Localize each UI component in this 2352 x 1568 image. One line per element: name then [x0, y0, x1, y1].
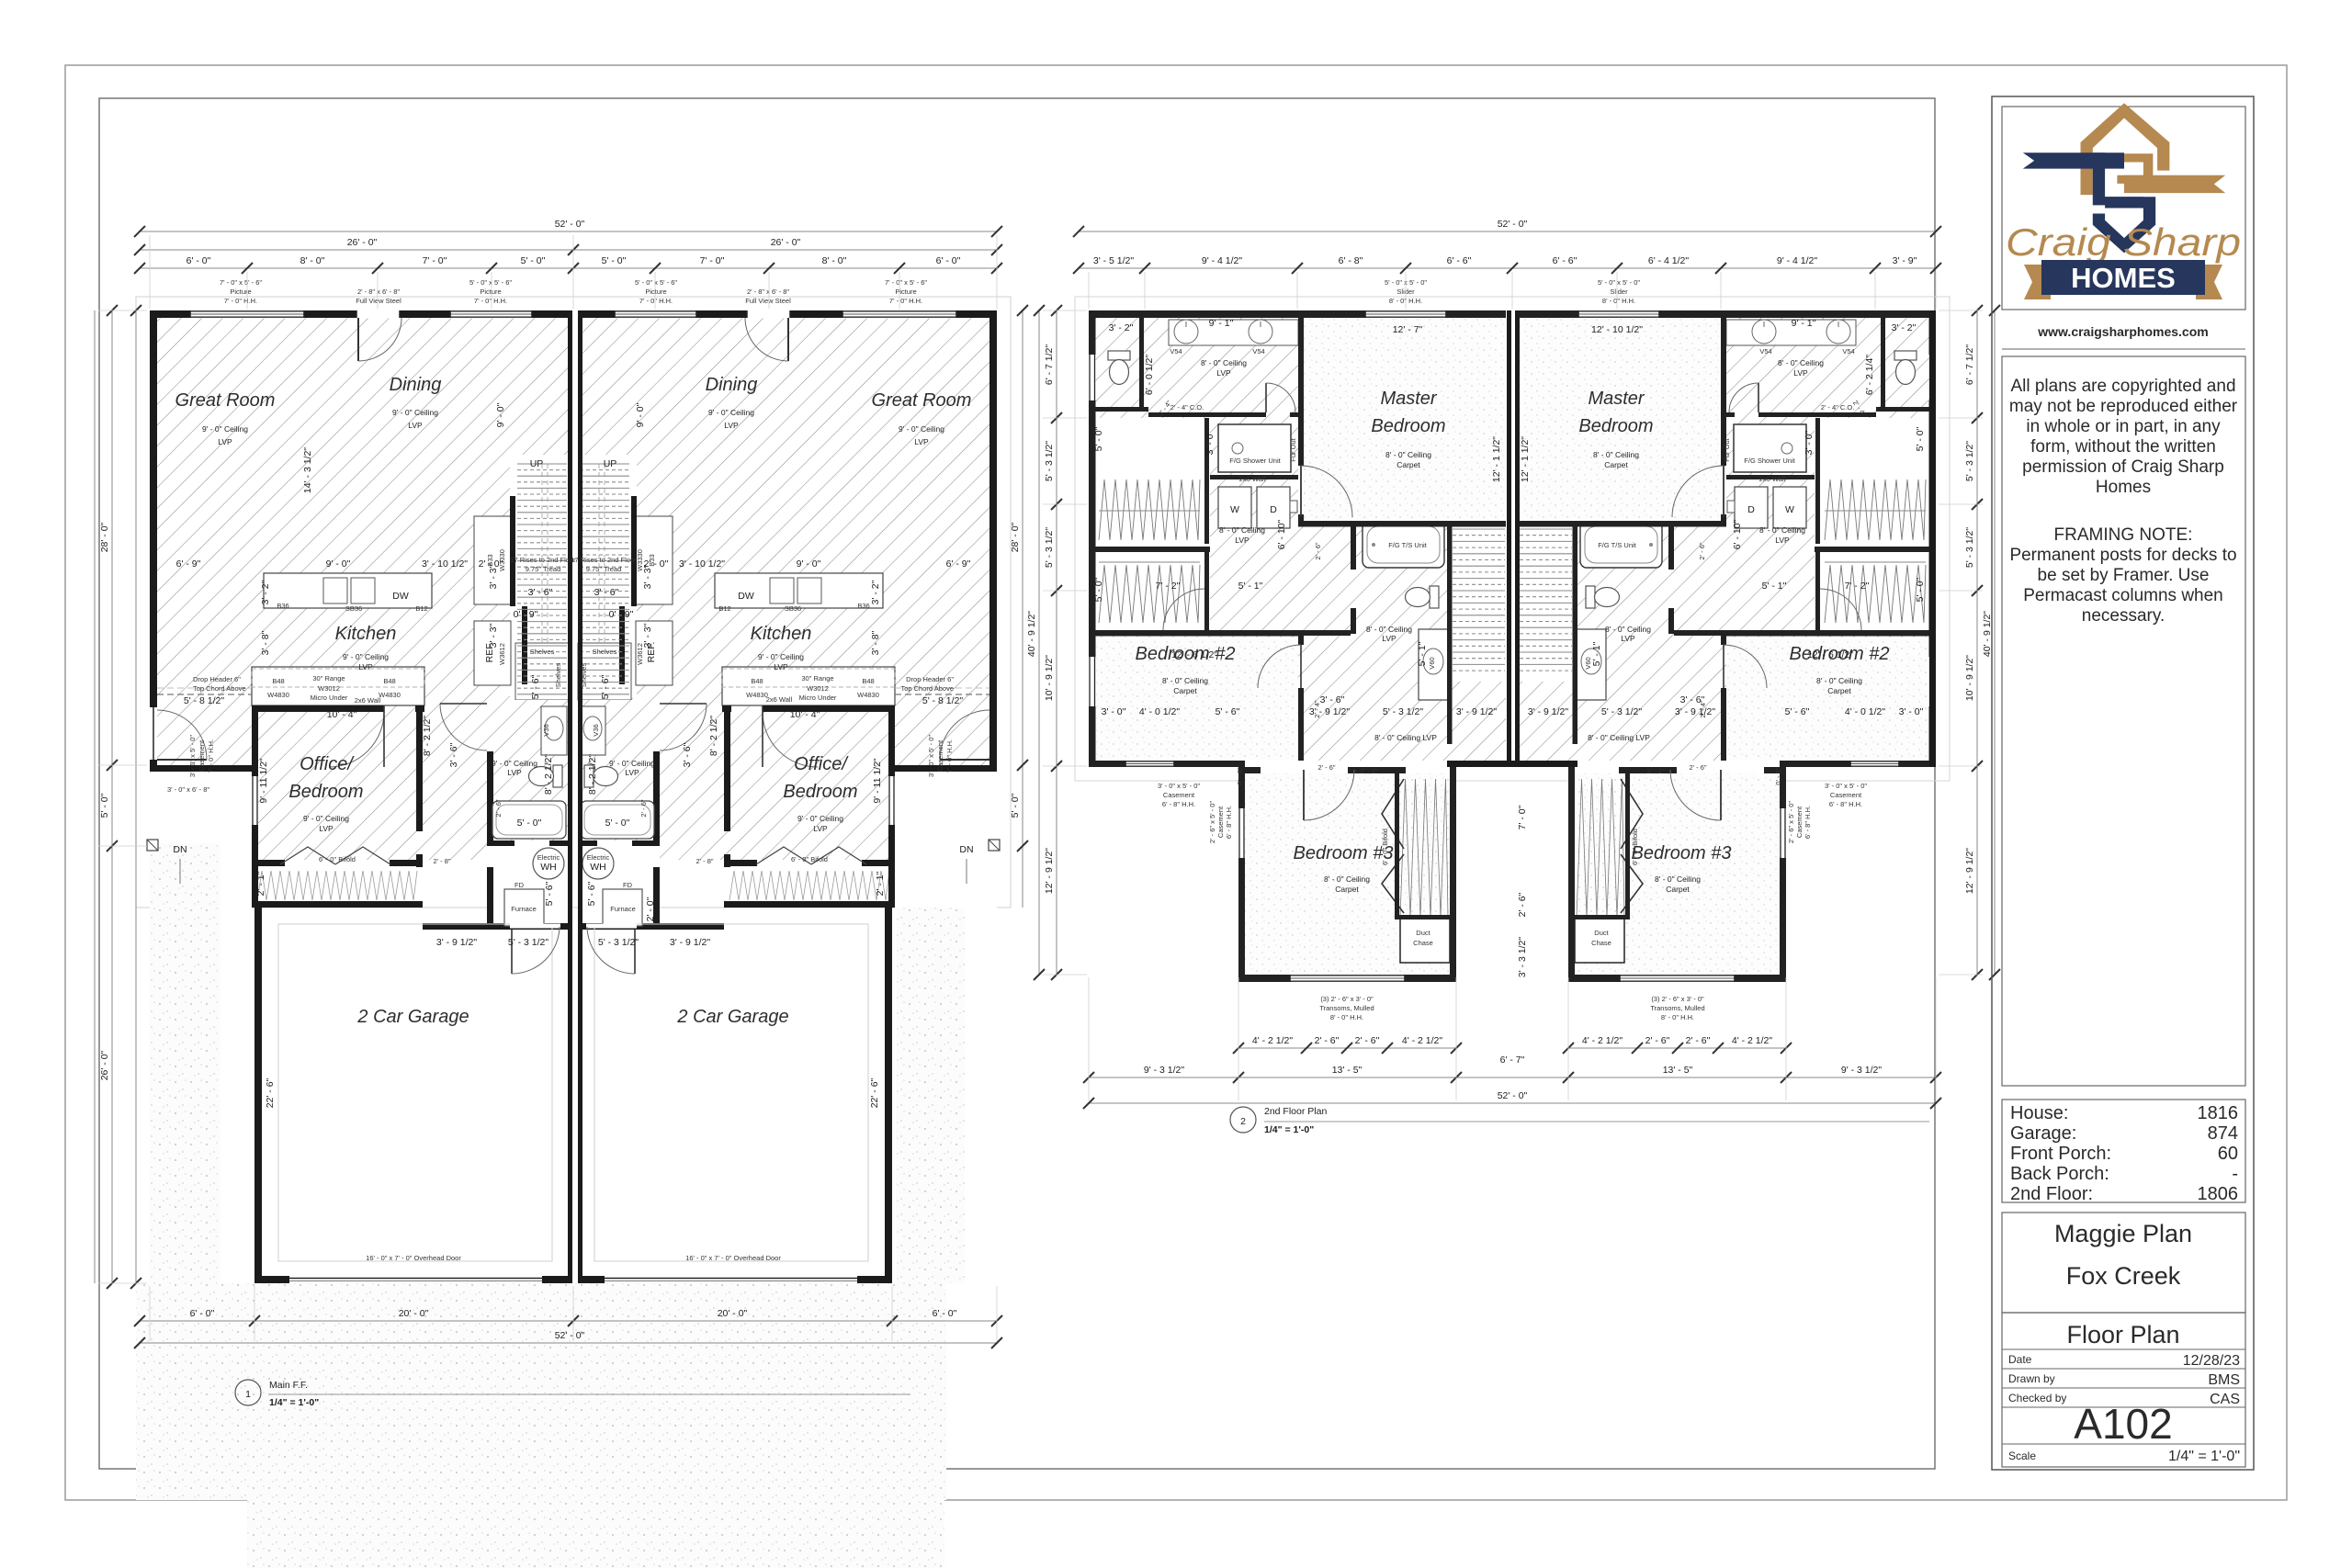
svg-text:8' - 0" Ceiling LVP: 8' - 0" Ceiling LVP: [1588, 733, 1650, 742]
svg-text:2' - 6": 2' - 6": [1517, 892, 1528, 917]
svg-text:13' - 5": 13' - 5": [1663, 1065, 1693, 1076]
svg-text:SB36: SB36: [785, 604, 801, 613]
svg-text:9' - 0" Ceiling: 9' - 0" Ceiling: [303, 814, 349, 823]
svg-text:Homes: Homes: [2096, 478, 2151, 497]
svg-text:6' - 0" Bifold: 6' - 0" Bifold: [319, 855, 356, 863]
svg-text:9' - 3 1/2": 9' - 3 1/2": [1841, 1065, 1883, 1076]
svg-text:DW: DW: [738, 591, 754, 602]
svg-text:12' - 10 1/2": 12' - 10 1/2": [1591, 324, 1643, 335]
svg-text:9' - 0" Ceiling: 9' - 0" Ceiling: [609, 759, 655, 768]
svg-text:LVP: LVP: [1235, 536, 1249, 545]
svg-text:A102: A102: [2074, 1400, 2172, 1448]
svg-text:6' - 0" Bifold: 6' - 0" Bifold: [1381, 829, 1389, 865]
svg-text:12' - 7": 12' - 7": [1393, 324, 1423, 335]
svg-text:5' - 0": 5' - 0": [1010, 793, 1021, 818]
svg-text:B36: B36: [857, 602, 869, 610]
svg-text:10' - 9 1/2": 10' - 9 1/2": [1044, 655, 1055, 701]
svg-text:2nd Floor:: 2nd Floor:: [2010, 1184, 2093, 1204]
svg-text:12' - 1 1/2": 12' - 1 1/2": [1491, 436, 1502, 482]
svg-text:5' - 0": 5' - 0": [602, 255, 627, 266]
svg-text:28' - 0": 28' - 0": [99, 522, 110, 552]
svg-text:3' - 9 1/2": 3' - 9 1/2": [1456, 706, 1498, 717]
svg-text:House:: House:: [2010, 1103, 2068, 1123]
svg-text:Carpet: Carpet: [1173, 686, 1197, 695]
svg-text:Full View Steel: Full View Steel: [745, 297, 791, 305]
svg-text:12' - 9 1/2": 12' - 9 1/2": [1964, 848, 1975, 894]
svg-text:5' - 0": 5' - 0": [517, 818, 542, 829]
svg-text:13' - 5": 13' - 5": [1332, 1065, 1363, 1076]
svg-text:SB36: SB36: [345, 604, 362, 613]
svg-text:5' - 1": 5' - 1": [1762, 581, 1787, 592]
svg-text:28' - 0": 28' - 0": [1010, 522, 1021, 552]
svg-text:8' - 0": 8' - 0": [300, 255, 325, 266]
svg-text:LVP: LVP: [1382, 634, 1396, 643]
svg-text:3' - 9 1/2": 3' - 9 1/2": [1528, 706, 1569, 717]
svg-text:be set by Framer. Use: be set by Framer. Use: [2038, 566, 2210, 585]
svg-text:26' - 0": 26' - 0": [99, 1050, 110, 1080]
svg-text:1816: 1816: [2198, 1103, 2239, 1123]
svg-text:Picture: Picture: [645, 288, 666, 296]
svg-text:permission of Craig Sharp: permission of Craig Sharp: [2022, 457, 2224, 477]
svg-text:5' - 3 1/2": 5' - 3 1/2": [1601, 706, 1643, 717]
svg-text:52' - 0": 52' - 0": [1498, 1090, 1528, 1101]
svg-text:Chase: Chase: [1413, 939, 1433, 947]
svg-text:W4830: W4830: [857, 691, 879, 699]
svg-text:3' - 9 1/2": 3' - 9 1/2": [670, 937, 711, 948]
svg-text:necessary.: necessary.: [2082, 606, 2165, 626]
svg-text:5' - 0" x 5' - 0": 5' - 0" x 5' - 0": [1598, 278, 1640, 287]
svg-text:6' - 2 1/4": 6' - 2 1/4": [1864, 355, 1875, 396]
svg-text:7' - 0" H.H.: 7' - 0" H.H.: [207, 739, 215, 773]
svg-text:2' - 8": 2' - 8": [695, 857, 713, 865]
svg-text:7' - 0" H.H.: 7' - 0" H.H.: [474, 297, 507, 305]
svg-text:7' - 2": 7' - 2": [1156, 581, 1181, 592]
svg-text:30" Range: 30" Range: [312, 674, 345, 682]
svg-text:5' - 3 1/2": 5' - 3 1/2": [1044, 527, 1055, 569]
svg-text:8' - 0" H.H.: 8' - 0" H.H.: [1602, 297, 1635, 305]
svg-text:3' - 5 1/2": 3' - 5 1/2": [1093, 255, 1135, 266]
svg-text:14' - 3 1/2": 14' - 3 1/2": [302, 447, 313, 493]
svg-text:V54: V54: [1170, 347, 1182, 355]
svg-text:22' - 6": 22' - 6": [265, 1077, 276, 1108]
svg-text:3' - 0": 3' - 0": [1899, 706, 1924, 717]
svg-text:8' - 2 1/2": 8' - 2 1/2": [543, 754, 554, 795]
svg-text:WH: WH: [590, 862, 606, 873]
svg-text:3' - 0" x 5' - 0": 3' - 0" x 5' - 0": [1825, 782, 1867, 790]
svg-text:B12: B12: [718, 604, 730, 613]
svg-text:Duct: Duct: [1416, 929, 1430, 937]
svg-text:Date: Date: [2008, 1353, 2032, 1366]
svg-text:12' - 6 1/2": 12' - 6 1/2": [1807, 649, 1853, 660]
svg-text:6' - 8" H.H.: 6' - 8" H.H.: [1225, 806, 1233, 839]
svg-text:Garage:: Garage:: [2010, 1123, 2076, 1144]
svg-text:6' - 4 1/2": 6' - 4 1/2": [1648, 255, 1690, 266]
svg-text:Electric: Electric: [537, 853, 560, 862]
svg-text:8' - 0" Ceiling: 8' - 0" Ceiling: [1778, 358, 1824, 367]
svg-text:5' - 0": 5' - 0": [1915, 577, 1926, 602]
svg-text:8' - 0" Ceiling: 8' - 0" Ceiling: [1593, 450, 1639, 459]
svg-text:Duct: Duct: [1594, 929, 1609, 937]
svg-text:4' - 2 1/2": 4' - 2 1/2": [1582, 1035, 1623, 1046]
svg-text:6' - 7 1/2": 6' - 7 1/2": [1964, 344, 1975, 386]
svg-text:Carpet: Carpet: [1335, 885, 1359, 894]
svg-text:1/4" = 1'-0": 1/4" = 1'-0": [1264, 1124, 1314, 1135]
svg-text:2: 2: [1240, 1116, 1246, 1127]
svg-text:5' - 6": 5' - 6": [600, 674, 611, 699]
svg-text:D: D: [1747, 504, 1755, 515]
svg-text:5' - 6": 5' - 6": [1785, 706, 1810, 717]
svg-text:5' - 0" x 5' - 6": 5' - 0" x 5' - 6": [635, 278, 677, 287]
svg-text:3' - 0": 3' - 0": [1102, 706, 1126, 717]
svg-text:Casement: Casement: [1163, 791, 1195, 799]
svg-text:2' - 6": 2' - 6": [639, 799, 648, 817]
svg-text:6' - 8" H.H.: 6' - 8" H.H.: [1804, 806, 1812, 839]
svg-text:2' - 6": 2' - 6": [1686, 1035, 1711, 1046]
svg-text:9' - 1": 9' - 1": [1209, 318, 1234, 329]
svg-text:Top Chord Above: Top Chord Above: [900, 684, 954, 693]
svg-text:Checked by: Checked by: [2008, 1392, 2066, 1404]
svg-text:FRAMING NOTE:: FRAMING NOTE:: [2054, 525, 2193, 545]
svg-text:0' - 8": 0' - 8": [1774, 767, 1782, 784]
svg-text:LVP: LVP: [1775, 536, 1790, 545]
svg-text:W3612: W3612: [498, 643, 506, 665]
svg-text:Bedroom #3: Bedroom #3: [1294, 843, 1394, 863]
svg-text:B36: B36: [277, 602, 288, 610]
svg-text:7' - 0" H.H.: 7' - 0" H.H.: [639, 297, 673, 305]
svg-text:LVP: LVP: [914, 437, 929, 446]
svg-text:Picture: Picture: [230, 288, 251, 296]
svg-text:(3) 2' - 6" x 3' - 0": (3) 2' - 6" x 3' - 0": [1320, 995, 1374, 1003]
svg-text:7' - 0" H.H.: 7' - 0" H.H.: [945, 739, 954, 773]
svg-text:B48: B48: [272, 677, 284, 685]
svg-text:Top Chord Above: Top Chord Above: [193, 684, 246, 693]
svg-text:Dining: Dining: [390, 375, 442, 395]
svg-text:12/28/23: 12/28/23: [2183, 1353, 2240, 1369]
svg-text:Carpet: Carpet: [1666, 885, 1690, 894]
svg-text:1/4" = 1'-0": 1/4" = 1'-0": [269, 1397, 319, 1408]
svg-text:8' - 0": 8' - 0": [822, 255, 847, 266]
svg-text:6' - 6": 6' - 6": [1447, 255, 1472, 266]
svg-text:2' - 8" x 6' - 8": 2' - 8" x 6' - 8": [747, 288, 789, 296]
svg-text:8' - 0" Ceiling LVP: 8' - 0" Ceiling LVP: [1374, 733, 1437, 742]
svg-text:DN: DN: [959, 844, 973, 855]
svg-text:6' - 8": 6' - 8": [1339, 255, 1363, 266]
svg-text:9' - 0" Ceiling: 9' - 0" Ceiling: [392, 408, 438, 417]
svg-text:www.craigsharphomes.com: www.craigsharphomes.com: [2037, 324, 2208, 339]
svg-text:7' - 2": 7' - 2": [1845, 581, 1870, 592]
svg-text:2x6 Wall: 2x6 Wall: [1759, 475, 1786, 483]
svg-text:3' - 6": 3' - 6": [594, 587, 619, 598]
svg-text:7' - 0": 7' - 0": [700, 255, 725, 266]
svg-text:Bedroom #3: Bedroom #3: [1632, 843, 1732, 863]
svg-text:3' - 9 1/2": 3' - 9 1/2": [1675, 706, 1716, 717]
svg-text:6' - 0": 6' - 0": [187, 255, 211, 266]
svg-text:2' - 0": 2' - 0": [645, 897, 656, 921]
svg-text:D: D: [1270, 504, 1277, 515]
svg-text:Micro Under: Micro Under: [799, 694, 837, 702]
svg-text:2' - 6": 2' - 6": [1315, 1035, 1340, 1046]
svg-text:3' - 3": 3' - 3": [642, 564, 653, 589]
svg-text:9.75" Tread: 9.75" Tread: [526, 565, 561, 573]
svg-text:1806: 1806: [2198, 1184, 2239, 1204]
svg-text:B48: B48: [751, 677, 763, 685]
svg-text:9' - 0" Ceiling: 9' - 0" Ceiling: [797, 814, 843, 823]
svg-text:Fox Creek: Fox Creek: [2066, 1262, 2181, 1290]
svg-text:3' - 9": 3' - 9": [1893, 255, 1917, 266]
svg-text:LVP: LVP: [774, 662, 788, 671]
svg-text:W4830: W4830: [746, 691, 768, 699]
svg-text:9' - 0": 9' - 0": [495, 402, 506, 427]
svg-text:2' - 6": 2' - 6": [494, 799, 503, 817]
svg-text:10' - 9 1/2": 10' - 9 1/2": [1964, 655, 1975, 701]
svg-text:12' - 9 1/2": 12' - 9 1/2": [1044, 848, 1055, 894]
svg-text:3' - 6": 3' - 6": [682, 742, 693, 767]
svg-text:Scale: Scale: [2008, 1450, 2036, 1462]
svg-text:2 Car Garage: 2 Car Garage: [676, 1007, 788, 1027]
svg-text:(3) 2' - 6" x 3' - 0": (3) 2' - 6" x 3' - 0": [1651, 995, 1704, 1003]
svg-text:5' - 1": 5' - 1": [1417, 641, 1428, 666]
svg-text:LVP: LVP: [1793, 368, 1808, 378]
svg-text:4' - 0 1/2": 4' - 0 1/2": [1139, 706, 1181, 717]
svg-text:LVP: LVP: [1621, 634, 1635, 643]
svg-text:9' - 0" Ceiling: 9' - 0" Ceiling: [202, 424, 248, 434]
svg-text:3' - 8": 3' - 8": [870, 630, 881, 655]
svg-text:3' - 0" x 6' - 8": 3' - 0" x 6' - 8": [167, 785, 209, 794]
svg-text:V54: V54: [1759, 347, 1771, 355]
svg-text:7' - 0" x 5' - 6": 7' - 0" x 5' - 6": [885, 278, 927, 287]
svg-text:Kitchen: Kitchen: [751, 624, 812, 644]
svg-text:Dining: Dining: [706, 375, 758, 395]
svg-text:Casement: Casement: [1216, 806, 1225, 838]
svg-text:2' - 8": 2' - 8": [433, 857, 450, 865]
svg-text:2x6 Wall: 2x6 Wall: [355, 696, 381, 705]
svg-text:Drop Header 6": Drop Header 6": [193, 675, 241, 683]
svg-text:52' - 0": 52' - 0": [555, 1330, 585, 1341]
svg-text:2' - 1": 2' - 1": [1360, 767, 1377, 775]
svg-text:8' - 2 1/2": 8' - 2 1/2": [422, 716, 433, 757]
svg-text:F/G T/S Unit: F/G T/S Unit: [1598, 541, 1636, 549]
svg-text:Great Room: Great Room: [872, 390, 972, 411]
svg-text:6' - 0": 6' - 0": [190, 1308, 215, 1319]
svg-text:3' - 3": 3' - 3": [642, 623, 653, 648]
svg-text:40' - 9 1/2": 40' - 9 1/2": [1026, 611, 1037, 657]
svg-text:LVP: LVP: [319, 824, 334, 833]
svg-text:2 Car Garage: 2 Car Garage: [356, 1007, 469, 1027]
svg-text:Bedroom: Bedroom: [1371, 416, 1445, 436]
svg-text:Master: Master: [1380, 389, 1437, 409]
svg-text:W: W: [1230, 504, 1239, 515]
svg-text:Shelves: Shelves: [580, 662, 588, 687]
svg-text:0' - 8": 0' - 8": [1236, 767, 1244, 784]
svg-text:10' - 4": 10' - 4": [790, 709, 820, 720]
svg-text:Floor Plan: Floor Plan: [2066, 1321, 2179, 1348]
svg-text:2' - 1": 2' - 1": [875, 871, 886, 896]
svg-text:5' - 0": 5' - 0": [521, 255, 546, 266]
svg-text:Casement: Casement: [1830, 791, 1862, 799]
svg-text:Electric: Electric: [587, 853, 610, 862]
svg-text:6' - 9": 6' - 9": [176, 558, 201, 570]
svg-text:5' - 6": 5' - 6": [544, 881, 555, 906]
svg-text:Micro Under: Micro Under: [311, 694, 348, 702]
svg-text:2x6 Wall: 2x6 Wall: [766, 695, 793, 704]
svg-text:2' - 8" x 6' - 8": 2' - 8" x 6' - 8": [357, 288, 400, 296]
svg-text:V54: V54: [1842, 347, 1854, 355]
svg-text:5' - 0": 5' - 0": [99, 793, 110, 818]
svg-text:26' - 0": 26' - 0": [347, 237, 378, 248]
svg-text:9' - 0": 9' - 0": [326, 558, 351, 570]
svg-text:Bedroom: Bedroom: [1578, 416, 1653, 436]
svg-text:52' - 0": 52' - 0": [1498, 219, 1528, 230]
svg-text:8' - 0" Ceiling: 8' - 0" Ceiling: [1324, 874, 1370, 884]
svg-text:8' - 2 1/2": 8' - 2 1/2": [587, 754, 598, 795]
svg-text:17 Rises to 2nd Floor: 17 Rises to 2nd Floor: [571, 556, 637, 564]
svg-text:Front Porch:: Front Porch:: [2010, 1144, 2111, 1164]
svg-text:3' - 0": 3' - 0": [1804, 430, 1815, 455]
svg-text:4' - 0 1/2": 4' - 0 1/2": [1845, 706, 1886, 717]
svg-text:Back Porch:: Back Porch:: [2010, 1164, 2109, 1184]
svg-text:LVP: LVP: [1216, 368, 1231, 378]
svg-text:Furnace: Furnace: [511, 905, 537, 913]
svg-text:6' - 0 1/2": 6' - 0 1/2": [1144, 355, 1155, 396]
svg-text:LVP: LVP: [625, 768, 639, 777]
svg-text:FD: FD: [514, 881, 525, 889]
svg-text:3' - 0": 3' - 0": [1204, 430, 1216, 455]
svg-text:9' - 1": 9' - 1": [1792, 318, 1816, 329]
svg-text:8' - 0" H.H.: 8' - 0" H.H.: [1661, 1013, 1694, 1021]
svg-text:9' - 0" Ceiling: 9' - 0" Ceiling: [343, 652, 389, 661]
svg-text:3' - 10 1/2": 3' - 10 1/2": [422, 558, 468, 570]
svg-text:7' - 0" H.H.: 7' - 0" H.H.: [224, 297, 257, 305]
svg-text:8' - 0" H.H.: 8' - 0" H.H.: [1330, 1013, 1363, 1021]
svg-text:5' - 3 1/2": 5' - 3 1/2": [1964, 441, 1975, 482]
svg-text:Shelves: Shelves: [554, 662, 562, 687]
svg-text:5' - 1": 5' - 1": [1591, 641, 1602, 666]
svg-text:LVP: LVP: [507, 768, 522, 777]
svg-text:9' - 4 1/2": 9' - 4 1/2": [1777, 255, 1818, 266]
svg-text:Bedroom: Bedroom: [783, 782, 857, 802]
svg-text:2' - 6": 2' - 6": [1317, 763, 1335, 772]
svg-text:2' - 0": 2' - 0": [485, 897, 496, 921]
svg-text:3' - 10 1/2": 3' - 10 1/2": [679, 558, 725, 570]
svg-text:9' - 11 1/2": 9' - 11 1/2": [872, 758, 883, 804]
svg-text:FD: FD: [623, 881, 633, 889]
svg-text:8' - 0" Ceiling: 8' - 0" Ceiling: [1816, 676, 1862, 685]
svg-text:CAS: CAS: [2210, 1392, 2240, 1407]
svg-text:Carpet: Carpet: [1604, 460, 1628, 469]
svg-text:6' - 0": 6' - 0": [936, 255, 961, 266]
svg-text:Drop Header 6": Drop Header 6": [906, 675, 954, 683]
svg-text:4' - 2 1/2": 4' - 2 1/2": [1732, 1035, 1773, 1046]
svg-text:Master: Master: [1588, 389, 1645, 409]
svg-text:2' - 4" C.O.: 2' - 4" C.O.: [1170, 403, 1204, 412]
svg-text:16' - 0" x 7' - 0" Overhead Do: 16' - 0" x 7' - 0" Overhead Door: [366, 1254, 461, 1262]
svg-text:10' - 4": 10' - 4": [327, 709, 357, 720]
svg-text:5' - 8 1/2": 5' - 8 1/2": [184, 695, 225, 706]
svg-text:Transoms, Mulled: Transoms, Mulled: [1319, 1004, 1374, 1012]
svg-text:5' - 6": 5' - 6": [530, 674, 541, 699]
svg-text:3' - 9 1/2": 3' - 9 1/2": [436, 937, 478, 948]
svg-text:Main F.F.: Main F.F.: [269, 1380, 308, 1391]
svg-text:Great Room: Great Room: [175, 390, 276, 411]
svg-text:2' - 6": 2' - 6": [1314, 542, 1322, 559]
svg-text:8' - 0" Ceiling: 8' - 0" Ceiling: [1201, 358, 1247, 367]
svg-text:0' - 9": 0' - 9": [514, 609, 538, 620]
svg-text:6' - 0" Bifold: 6' - 0" Bifold: [1631, 829, 1639, 865]
svg-text:Shelves: Shelves: [593, 648, 617, 656]
svg-text:Permacast columns when: Permacast columns when: [2023, 586, 2223, 605]
svg-text:5' - 8 1/2": 5' - 8 1/2": [922, 695, 964, 706]
svg-text:5' - 6": 5' - 6": [1216, 706, 1240, 717]
svg-text:F/G Shower Unit: F/G Shower Unit: [1229, 457, 1281, 465]
svg-text:DW: DW: [392, 591, 409, 602]
svg-text:5' - 0": 5' - 0": [1093, 577, 1104, 602]
svg-text:3' - 0" x 5' - 0": 3' - 0" x 5' - 0": [188, 735, 197, 777]
svg-text:Slider: Slider: [1610, 288, 1628, 296]
svg-text:2' - 1": 2' - 1": [1646, 767, 1664, 775]
svg-text:WH: WH: [540, 862, 557, 873]
svg-text:Bedroom: Bedroom: [288, 782, 363, 802]
svg-text:6' - 10": 6' - 10": [1732, 519, 1743, 549]
svg-text:3' - 3 1/2": 3' - 3 1/2": [1517, 937, 1528, 978]
svg-text:52' - 0": 52' - 0": [555, 219, 585, 230]
svg-text:9.75" Tread: 9.75" Tread: [586, 565, 622, 573]
svg-text:W3012: W3012: [318, 684, 340, 693]
svg-text:7' - 0": 7' - 0": [1517, 805, 1528, 829]
svg-text:V60: V60: [1428, 657, 1436, 669]
svg-text:6' - 0": 6' - 0": [933, 1308, 957, 1319]
svg-text:Picture: Picture: [480, 288, 501, 296]
svg-text:0' - 9": 0' - 9": [609, 609, 634, 620]
svg-text:5' - 3 1/2": 5' - 3 1/2": [508, 937, 549, 948]
svg-text:1/4" = 1'-0": 1/4" = 1'-0": [2168, 1449, 2240, 1464]
svg-text:9' - 0": 9' - 0": [635, 402, 646, 427]
svg-text:7' - 0" H.H.: 7' - 0" H.H.: [889, 297, 922, 305]
svg-text:V54: V54: [1252, 347, 1264, 355]
svg-text:5' - 1": 5' - 1": [1238, 581, 1263, 592]
svg-text:3' - 6": 3' - 6": [528, 587, 553, 598]
svg-text:W: W: [1785, 504, 1794, 515]
svg-text:W3012: W3012: [807, 684, 829, 693]
svg-text:2' - 1": 2' - 1": [255, 871, 266, 896]
svg-text:F/G Shower Unit: F/G Shower Unit: [1744, 457, 1795, 465]
svg-text:3' - 8": 3' - 8": [260, 630, 271, 655]
svg-text:7' - 0" x 5' - 6": 7' - 0" x 5' - 6": [220, 278, 262, 287]
svg-text:UP: UP: [604, 458, 617, 469]
svg-text:Full View Steel: Full View Steel: [356, 297, 401, 305]
svg-text:4' - 2 1/2": 4' - 2 1/2": [1252, 1035, 1294, 1046]
svg-text:LVP: LVP: [218, 437, 232, 446]
svg-text:20' - 0": 20' - 0": [399, 1308, 429, 1319]
svg-text:Maggie Plan: Maggie Plan: [2054, 1220, 2192, 1247]
svg-text:B48: B48: [862, 677, 874, 685]
svg-text:8' - 0" Ceiling: 8' - 0" Ceiling: [1162, 676, 1208, 685]
svg-text:V36: V36: [542, 724, 550, 736]
svg-text:Office/: Office/: [794, 754, 849, 774]
svg-text:3' - 6": 3' - 6": [448, 742, 459, 767]
svg-text:6' - 8" H.H.: 6' - 8" H.H.: [1829, 800, 1862, 808]
svg-text:Shelves: Shelves: [530, 648, 555, 656]
svg-text:9' - 11 1/2": 9' - 11 1/2": [258, 758, 269, 804]
svg-text:Carpet: Carpet: [1827, 686, 1851, 695]
svg-text:3' - 9 1/2": 3' - 9 1/2": [1309, 706, 1351, 717]
svg-text:3' - 2": 3' - 2": [1892, 322, 1917, 333]
svg-text:W4830: W4830: [379, 691, 401, 699]
svg-text:5' - 0": 5' - 0": [1093, 426, 1104, 451]
svg-text:60: 60: [2218, 1144, 2238, 1164]
svg-text:2' - 6": 2' - 6": [1645, 1035, 1670, 1046]
svg-text:3' - 3": 3' - 3": [488, 623, 499, 648]
svg-text:26' - 0": 26' - 0": [771, 237, 801, 248]
